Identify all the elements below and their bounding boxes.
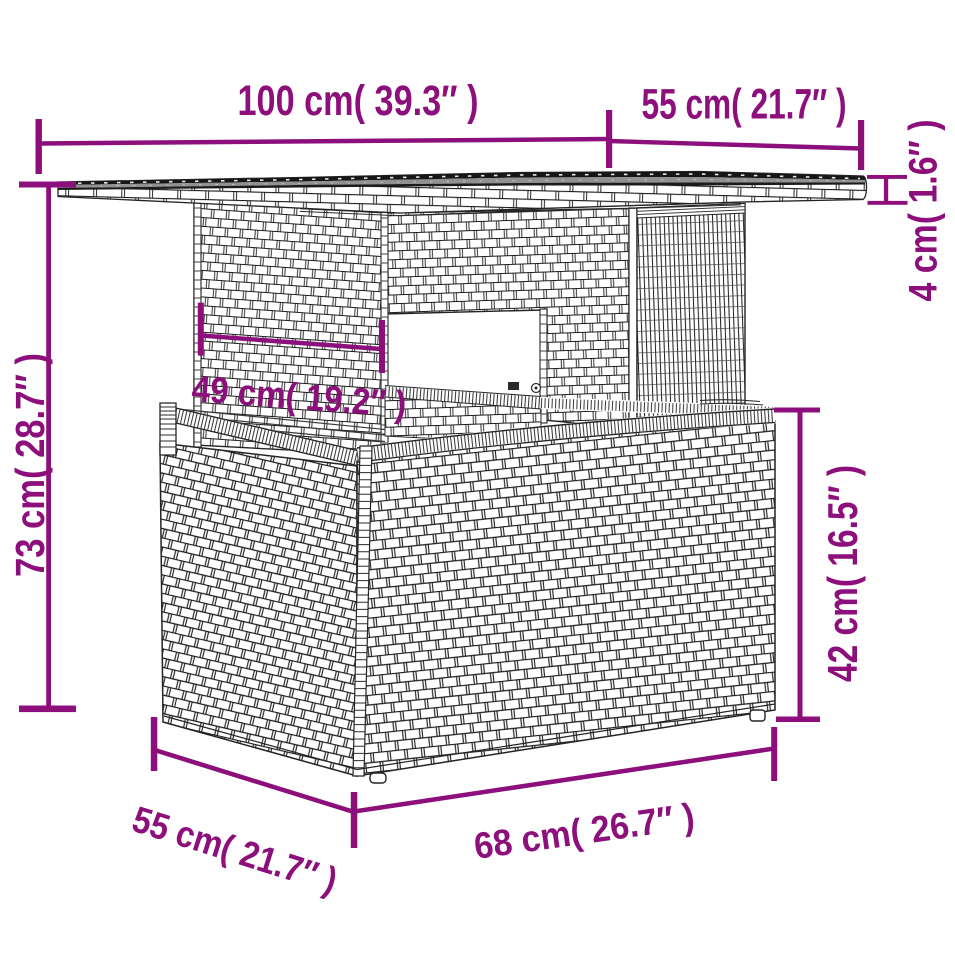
svg-text:4 cm( 1.6″ ): 4 cm( 1.6″ ): [902, 120, 946, 302]
svg-text:100 cm( 39.3″ ): 100 cm( 39.3″ ): [238, 77, 479, 125]
svg-text:73 cm( 28.7″ ): 73 cm( 28.7″ ): [7, 353, 53, 577]
svg-text:42 cm( 16.5″ ): 42 cm( 16.5″ ): [819, 465, 866, 682]
svg-text:55 cm( 21.7″ ): 55 cm( 21.7″ ): [642, 81, 847, 129]
